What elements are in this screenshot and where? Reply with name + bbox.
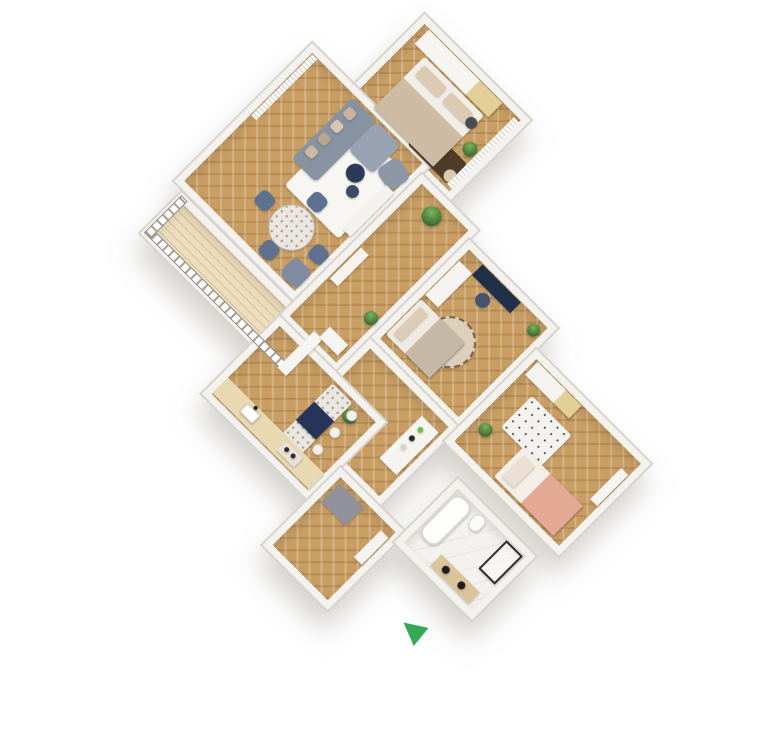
floor-plan-page [0,0,762,730]
floor-plan [10,0,760,703]
direction-marker[interactable] [400,614,432,648]
direction-marker-triangle-icon [400,614,432,648]
